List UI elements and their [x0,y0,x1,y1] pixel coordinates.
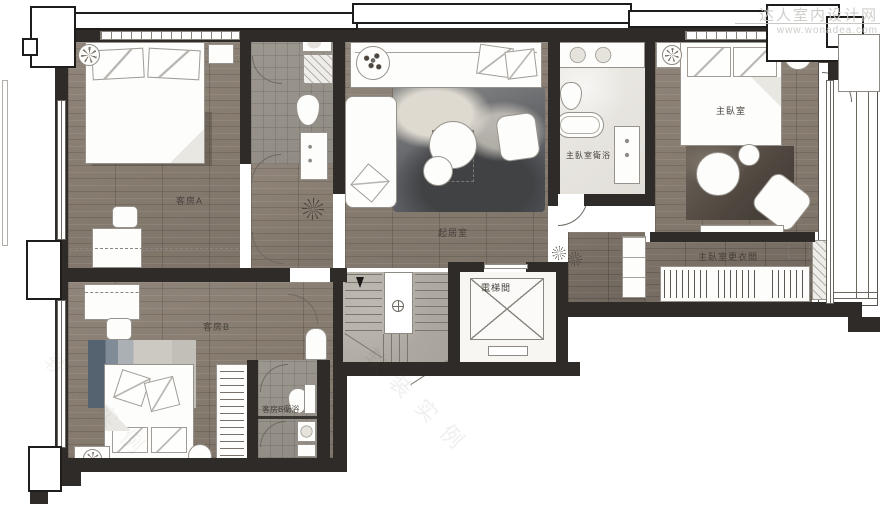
wall-elevator-right [556,262,568,376]
wall-bath-a-left [240,42,251,164]
room-label-bath-b: 客房B衛浴 [262,404,299,415]
guest-a-chair [112,206,138,228]
hanger-rods [664,270,806,298]
master-pouf-small [738,144,760,166]
window-guest-a [57,100,66,240]
plant-icon [552,246,566,260]
room-label-elevator: 電梯間 [481,281,511,294]
ceiling-fan-icon [78,44,100,66]
wall-lower-block-right [333,362,347,472]
guest-a-nightstand [208,44,234,64]
window-guest-a-top [100,31,240,40]
stair-flight-right [415,274,448,332]
exterior-notch-top-left [22,38,38,56]
pillow [147,48,200,81]
corridor-basin [305,328,327,360]
room-label-master: 主臥室 [716,104,746,117]
hanger-gap [707,270,715,298]
duvet-fold [751,77,781,107]
wall-living-right [548,42,560,194]
room-label-master-bath: 主臥室衛浴 [566,150,611,161]
wall-master-bath-bottom [548,194,558,206]
bath-b-vanity [304,384,316,414]
exterior-lines-left [2,80,8,246]
stair-survey-symbol [392,300,404,312]
wall-divider-ab [330,268,347,282]
exterior-band-right [628,10,768,28]
wall-bottom-left [55,458,347,472]
ceiling-dash-line [70,248,238,249]
guest-b-desk [84,284,140,320]
exterior-corner-top-left [30,6,76,68]
wall-step-bottom-right [848,317,880,332]
sofa-pillow [504,48,537,79]
flower-vase-icon [356,46,390,80]
duvet-fold [170,129,204,163]
wall-divider-ab [55,268,290,282]
plant-icon [568,252,582,266]
pillow [687,47,731,77]
hall-cabinet [622,236,646,298]
room-label-living: 起居室 [438,226,468,239]
balcony-rail-line [830,292,878,293]
ceiling-dash-line [70,292,310,293]
guest-a-bed [85,42,205,164]
balcony-rail-line [868,70,869,298]
sliding-door-master [826,80,834,304]
bath-b-divider-wall [258,416,317,419]
bath-a-shower [303,54,333,84]
watermark-underline [735,23,880,24]
wall-elevator-top [526,262,568,272]
wall-elevator-top [448,262,484,272]
elevator-door [484,264,528,269]
ac-platform-top-right [838,34,880,92]
wall-bath-a-right [333,42,345,194]
room-label-closet: 主臥室更衣間 [698,250,758,263]
watermark-site-name: 达人室内设计网 [759,4,878,25]
chaise-pillow [350,163,389,202]
exterior-band-mid [352,3,632,24]
living-armchair [495,111,541,162]
master-bath-vanity [614,126,640,184]
bath-a-vanity [300,132,328,180]
exterior-pillar-left [26,240,62,300]
guest-b-wardrobe [216,364,248,460]
wall-master-bath-right [645,42,655,206]
wall-bath-b-left [247,360,258,472]
closet-wardrobe [660,266,810,302]
crosshair-fan-icon [662,45,682,65]
exterior-step-bottom-left [28,446,62,492]
balcony-rail-line [856,70,857,298]
floor-plan: 客房A 起居室 主臥室衛浴 主臥室 [0,0,880,516]
dryer [297,444,316,457]
stair-direction-arrow [356,277,364,288]
watermark-site-url: www.wonadea.com [777,25,878,36]
elevator-threshold [488,346,528,356]
room-label-guest-a: 客房A [176,194,203,207]
living-chaise [345,96,397,208]
wall-closet-top [650,232,815,242]
master-bathtub [556,112,604,138]
guest-b-chair [106,318,132,340]
washer [297,421,316,442]
exterior-band-left [58,12,358,30]
wall-elevator-left [448,262,460,376]
master-bath-counter [558,42,645,68]
room-label-guest-b: 客房B [203,320,230,333]
balcony-rail-line [830,298,878,299]
side-table [423,156,453,186]
wall-bottom-right [560,302,862,317]
wardrobe-slats [220,368,244,456]
deco-pillow [144,376,180,412]
wall-bath-b-right [317,360,330,472]
plant-icon [302,198,324,220]
bathtub-inner-line [560,116,600,134]
master-pouf-large [696,152,740,196]
hanger-gap [759,270,767,298]
